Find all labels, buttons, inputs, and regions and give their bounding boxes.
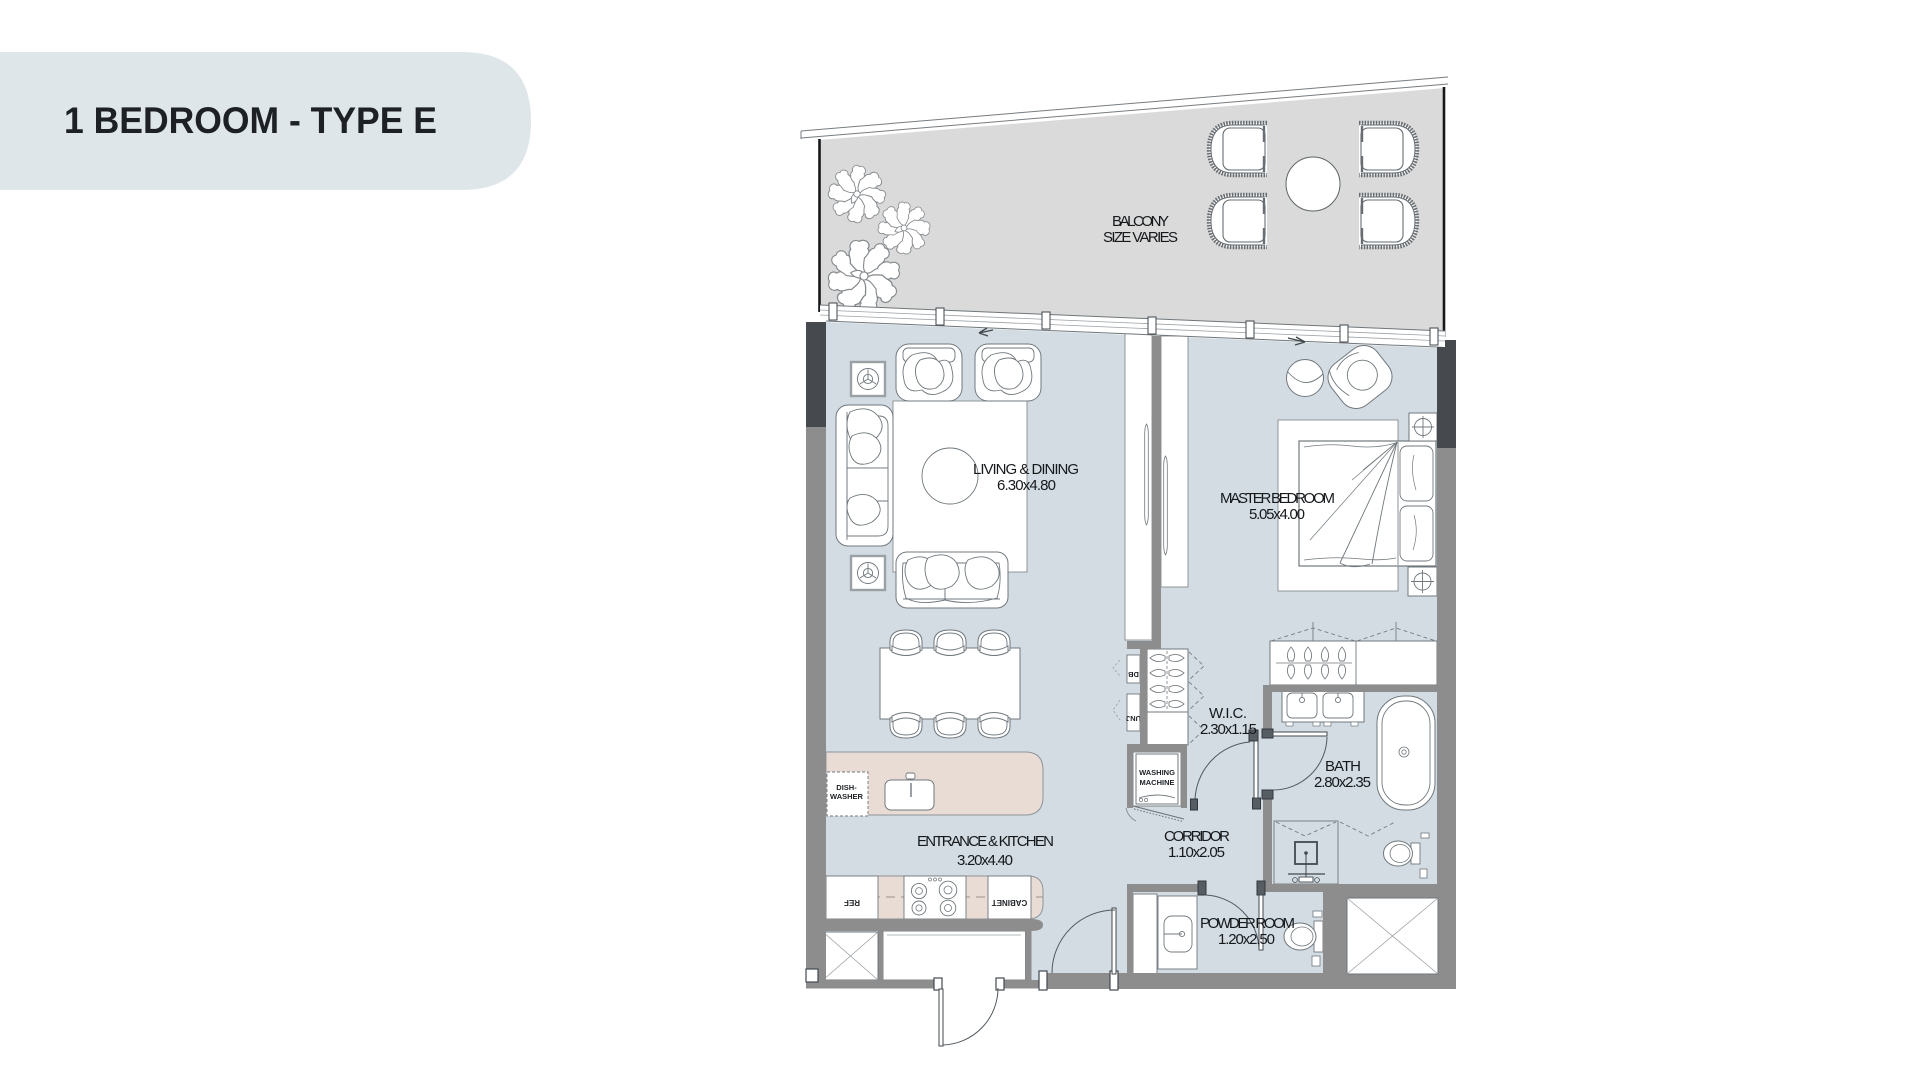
svg-text:ENTRANCE & KITCHEN: ENTRANCE & KITCHEN (917, 833, 1054, 850)
svg-text:WASHING: WASHING (1139, 768, 1175, 777)
svg-text:REF: REF (844, 898, 860, 907)
svg-text:WASHER: WASHER (830, 792, 864, 801)
svg-text:UNJ: UNJ (1126, 714, 1141, 723)
svg-text:BATH: BATH (1325, 758, 1361, 775)
svg-text:DB: DB (1128, 670, 1139, 679)
svg-text:CABINET: CABINET (992, 898, 1028, 907)
svg-text:2.30x1.15: 2.30x1.15 (1200, 721, 1257, 738)
svg-text:2.80x2.35: 2.80x2.35 (1314, 774, 1371, 791)
svg-text:5.05x4.00: 5.05x4.00 (1249, 506, 1305, 523)
svg-text:1 BEDROOM - TYPE E: 1 BEDROOM - TYPE E (64, 100, 437, 141)
svg-text:6.30x4.80: 6.30x4.80 (997, 477, 1056, 494)
svg-text:POWDER ROOM: POWDER ROOM (1200, 915, 1295, 932)
svg-text:BALCONY: BALCONY (1112, 213, 1169, 230)
svg-text:1.10x2.05: 1.10x2.05 (1168, 844, 1225, 861)
svg-text:MASTER BEDROOM: MASTER BEDROOM (1220, 490, 1335, 507)
svg-text:LIVING & DINING: LIVING & DINING (973, 461, 1079, 478)
svg-text:MACHINE: MACHINE (1140, 778, 1175, 787)
svg-text:CORRIDOR: CORRIDOR (1164, 828, 1230, 845)
svg-text:3.20x4.40: 3.20x4.40 (957, 852, 1013, 869)
svg-text:DISH-: DISH- (836, 783, 857, 792)
svg-text:1.20x2.50: 1.20x2.50 (1218, 931, 1275, 948)
svg-text:W.I.C.: W.I.C. (1209, 705, 1247, 722)
svg-text:SIZE VARIES: SIZE VARIES (1103, 229, 1178, 246)
